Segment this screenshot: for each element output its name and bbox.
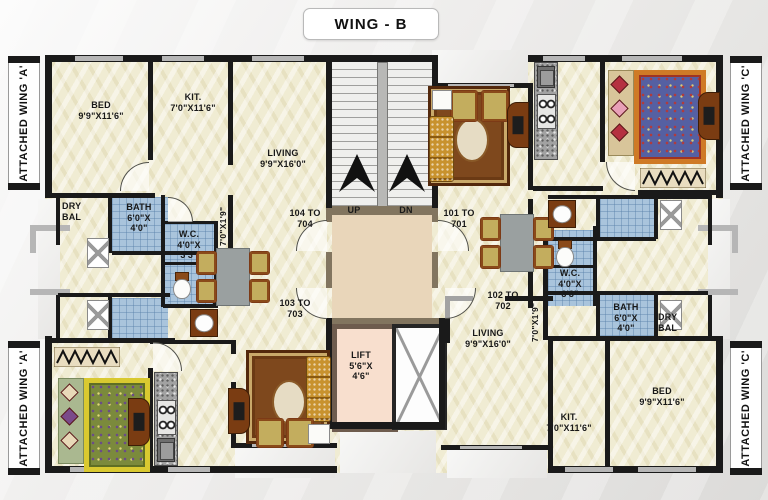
- dining-table: [500, 214, 534, 272]
- room-label-drybal-bottom-right: DRY BAL: [658, 312, 696, 333]
- balcony-column: [87, 238, 109, 268]
- room-label-bed-top-left: BED9'9"X11'6": [60, 100, 142, 121]
- room-label-bed-bottom-right: BED9'9"X11'6": [622, 386, 702, 407]
- room-label-kit-top-left: KIT.7'0"X11'6": [155, 92, 231, 113]
- dining-chair: [249, 279, 270, 303]
- window: [460, 446, 522, 449]
- wall: [45, 55, 52, 198]
- wall: [432, 252, 438, 288]
- window: [162, 56, 204, 61]
- stub-wall: [732, 225, 738, 253]
- wall: [58, 293, 170, 297]
- kitchen-sink: [157, 438, 175, 462]
- wing-c-top-label: ATTACHED WING 'C': [740, 65, 752, 182]
- toilet: [172, 272, 190, 298]
- balcony-column: [87, 300, 109, 330]
- sofa: [306, 356, 331, 422]
- stair-dn-label: DN: [392, 205, 420, 216]
- lift-label: LIFT 5'6"X 4'6": [336, 350, 386, 382]
- window: [75, 56, 123, 61]
- window: [252, 56, 304, 61]
- shaft-cross-icon: [396, 328, 443, 426]
- wall: [716, 336, 723, 473]
- wing-a-top-box: ATTACHED WING 'A': [8, 62, 40, 184]
- toilet: [555, 240, 573, 266]
- stove: [157, 400, 176, 435]
- wing-c-top-box: ATTACHED WING 'C': [730, 62, 762, 184]
- wall: [148, 55, 153, 160]
- washbasin: [548, 200, 576, 228]
- bath-bottom-left: [112, 298, 168, 340]
- window: [565, 467, 613, 472]
- wall: [45, 336, 52, 473]
- room-label-kit-bottom-right: KIT.7'0"X11'6": [532, 412, 606, 433]
- carpet-center-table: [455, 118, 489, 162]
- notch-top-right: [432, 50, 528, 83]
- armchair: [450, 90, 478, 122]
- door-label-104: 104 TO 704: [288, 208, 322, 229]
- wall: [708, 195, 712, 245]
- wall: [228, 195, 233, 255]
- tv-unit: [228, 388, 250, 434]
- tv-unit: [507, 102, 529, 148]
- room-label-wc-top-left: W.C.4'0"X3'3": [166, 229, 212, 261]
- zigzag-rug: [54, 347, 120, 367]
- window: [638, 467, 696, 472]
- wing-a-bottom-label: ATTACHED WING 'A': [18, 350, 30, 467]
- room-label-living-bottom-right: LIVING9'9"X16'0": [442, 328, 534, 349]
- armchair: [481, 90, 509, 122]
- lobby-floor: [332, 215, 432, 318]
- stove: [537, 94, 556, 129]
- wing-a-bottom-box: ATTACHED WING 'A': [8, 347, 40, 469]
- wall: [326, 55, 332, 208]
- dining-chair: [196, 279, 217, 303]
- balcony-column: [660, 200, 682, 230]
- wall: [605, 341, 610, 468]
- room-label-bath-bottom-right: BATH6'0"X4'0": [600, 302, 652, 334]
- wall: [163, 304, 218, 308]
- dining-chair: [480, 245, 501, 269]
- plan-title-box: WING - B: [303, 8, 439, 40]
- window: [543, 56, 585, 61]
- passage-label-left: 7'0"X1'9": [218, 196, 228, 256]
- wall: [326, 422, 445, 429]
- stub-wall: [30, 225, 36, 253]
- dining-table: [216, 248, 250, 306]
- sofa: [429, 116, 454, 182]
- zigzag-rug: [640, 168, 706, 188]
- wall: [56, 295, 60, 340]
- room-label-wc-bottom-right: W.C.4'0"X3'3": [548, 268, 592, 300]
- double-bed: [634, 70, 706, 164]
- window: [622, 56, 682, 61]
- door-label-101: 101 TO 701: [442, 208, 476, 229]
- armchair: [256, 418, 284, 448]
- door-label-103: 103 TO 703: [278, 298, 312, 319]
- kitchen-sink: [537, 66, 555, 88]
- dresser-unit: [698, 92, 720, 140]
- side-table: [308, 424, 330, 444]
- wall: [654, 197, 658, 239]
- wall: [45, 193, 155, 198]
- wall: [326, 252, 332, 288]
- wall: [548, 341, 553, 468]
- wing-c-bottom-box: ATTACHED WING 'C': [730, 347, 762, 469]
- dining-chair: [249, 251, 270, 275]
- washbasin: [190, 309, 218, 337]
- wall: [600, 55, 605, 162]
- wall: [708, 295, 712, 340]
- wall: [548, 195, 708, 199]
- room-label-living-top-left: LIVING9'9"X16'0": [238, 148, 328, 169]
- dining-chair: [480, 217, 501, 241]
- window: [168, 467, 210, 472]
- wing-a-top-label: ATTACHED WING 'A': [18, 65, 30, 182]
- stub-wall: [30, 225, 70, 231]
- passage-label-right: 7'0"X1'9": [530, 292, 540, 352]
- wing-c-bottom-label: ATTACHED WING 'C': [740, 350, 752, 467]
- wall: [56, 195, 60, 245]
- plan-title: WING - B: [335, 16, 408, 33]
- floor-plan-page: WING - B ATTACHED WING 'A' ATTACHED WING…: [0, 0, 768, 500]
- notch-bottom-left: [235, 448, 335, 478]
- room-label-bath-top-left: BATH6'0"X4'0": [113, 202, 165, 234]
- door-label-102: 102 TO 702: [486, 290, 520, 311]
- notch-bottom-right: [447, 450, 547, 478]
- wall: [548, 336, 723, 341]
- dresser-unit: [128, 398, 150, 446]
- wall: [533, 186, 603, 191]
- room-label-drybal-top-left: DRY BAL: [62, 201, 100, 222]
- dining-chair: [533, 245, 554, 269]
- notch-bottom-center: [340, 431, 436, 473]
- stair-up-label: UP: [340, 205, 368, 216]
- stair-up-arrow-icon: [337, 152, 377, 196]
- stair-dn-arrow-icon: [387, 152, 427, 196]
- side-table: [432, 90, 452, 110]
- bath-top-right: [600, 197, 654, 237]
